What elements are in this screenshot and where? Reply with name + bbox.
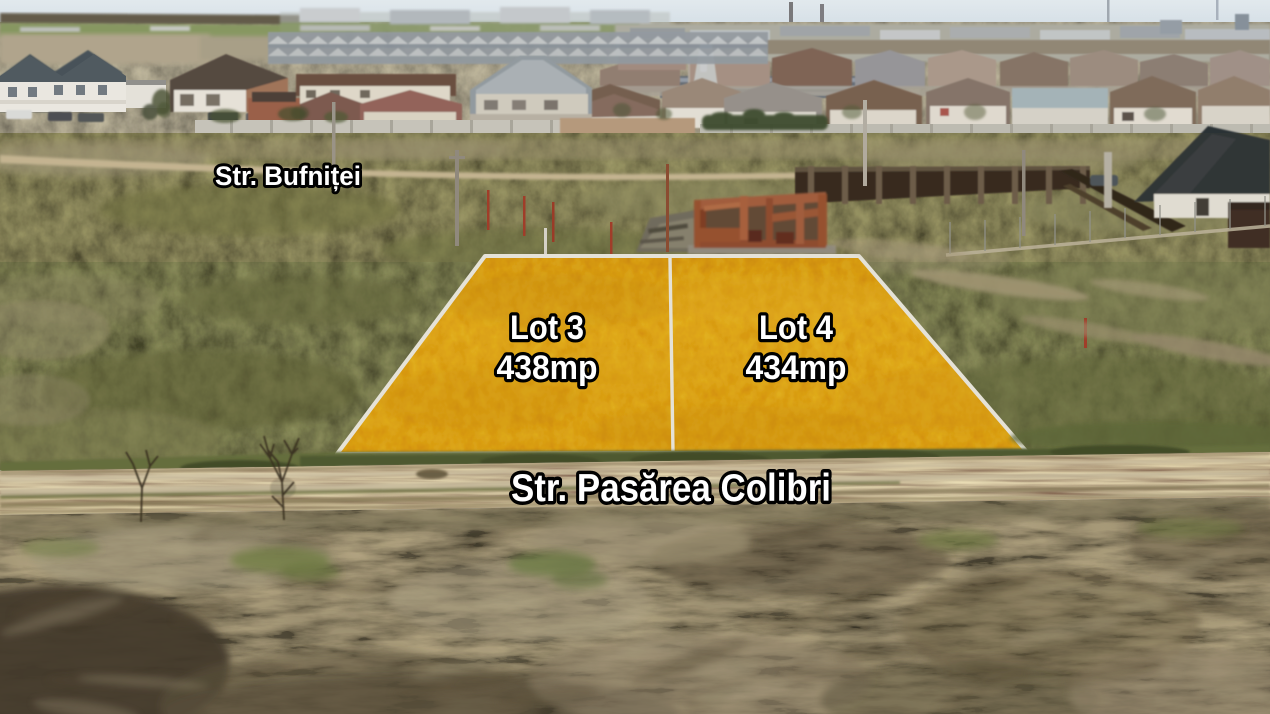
- svg-text:Str. Pasărea Colibri: Str. Pasărea Colibri: [511, 467, 831, 510]
- svg-text:438mp: 438mp: [497, 349, 598, 387]
- svg-text:Lot 3: Lot 3: [510, 309, 584, 347]
- svg-text:Lot 4: Lot 4: [759, 309, 833, 347]
- svg-text:Str. Bufniței: Str. Bufniței: [215, 161, 361, 191]
- svg-text:434mp: 434mp: [746, 349, 847, 387]
